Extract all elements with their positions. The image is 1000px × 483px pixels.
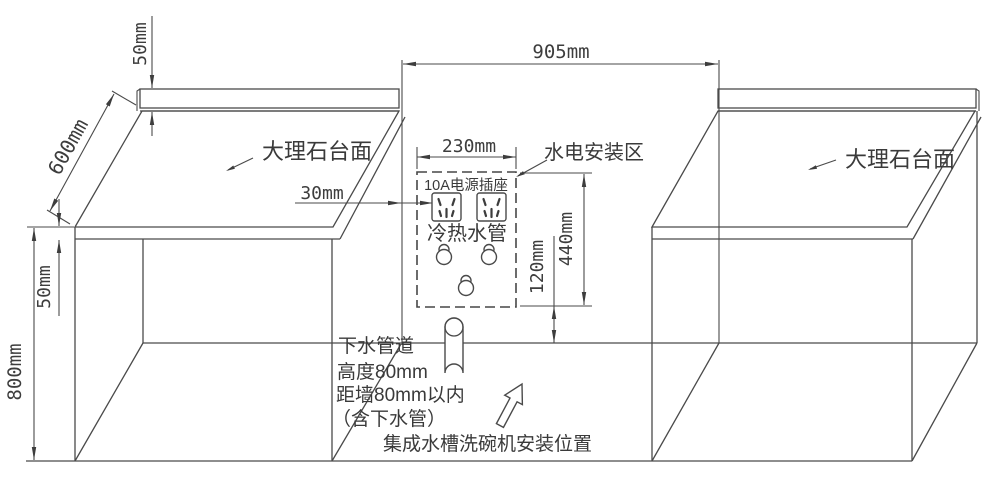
dim-800-label: 800mm (4, 343, 26, 400)
right-counter (652, 89, 981, 461)
drain-pipe-symbol (445, 318, 463, 373)
dim-50-slab-label: 50mm (34, 265, 55, 308)
water-pipe-symbol-left (437, 245, 452, 265)
water-pipe-symbol-right (482, 245, 497, 265)
dim-120: 120mm (527, 236, 556, 343)
water-pipe-symbol-lower (459, 276, 474, 296)
left-backsplash (140, 89, 399, 108)
install-position-arrow-icon (491, 379, 531, 430)
left-countertop-face (75, 111, 399, 227)
install-position-label: 集成水槽洗碗机安装位置 (383, 433, 592, 455)
drain-note-line3: 距墙80mm以内 (336, 384, 465, 406)
pipes-label: 冷热水管 (427, 222, 507, 245)
left-countertop-leader (226, 158, 253, 171)
dim-230: 230mm (417, 136, 516, 169)
dim-30-label: 30mm (300, 183, 343, 204)
dim-600: 600mm (43, 91, 136, 224)
dim-230-label: 230mm (442, 136, 496, 157)
diagram-canvas: 905mm 230mm 30mm 50mm 600mm (0, 0, 1000, 483)
left-countertop-label: 大理石台面 (262, 139, 372, 164)
power-socket-left (432, 193, 461, 221)
right-countertop-label: 大理石台面 (845, 147, 955, 172)
outlet-label: 10A电源插座 (424, 177, 508, 194)
right-backsplash (718, 89, 976, 108)
dim-50-top: 50mm (130, 16, 154, 136)
utility-zone-label: 水电安装区 (544, 141, 644, 164)
drain-note-line4: （含下水管） (332, 408, 446, 430)
right-countertop-leader (808, 160, 836, 170)
installation-diagram: 905mm 230mm 30mm 50mm 600mm (0, 0, 1000, 483)
dim-800: 800mm (4, 227, 74, 460)
drain-note-line1: 下水管道 (338, 335, 414, 357)
drain-note-line2: 高度80mm (337, 361, 428, 383)
dim-50-top-label: 50mm (130, 22, 151, 65)
utility-zone-leader (516, 160, 547, 177)
dim-120-label: 120mm (527, 240, 548, 294)
dim-440-label: 440mm (556, 212, 577, 266)
dim-905-label: 905mm (532, 41, 589, 63)
power-socket-right (477, 193, 506, 221)
